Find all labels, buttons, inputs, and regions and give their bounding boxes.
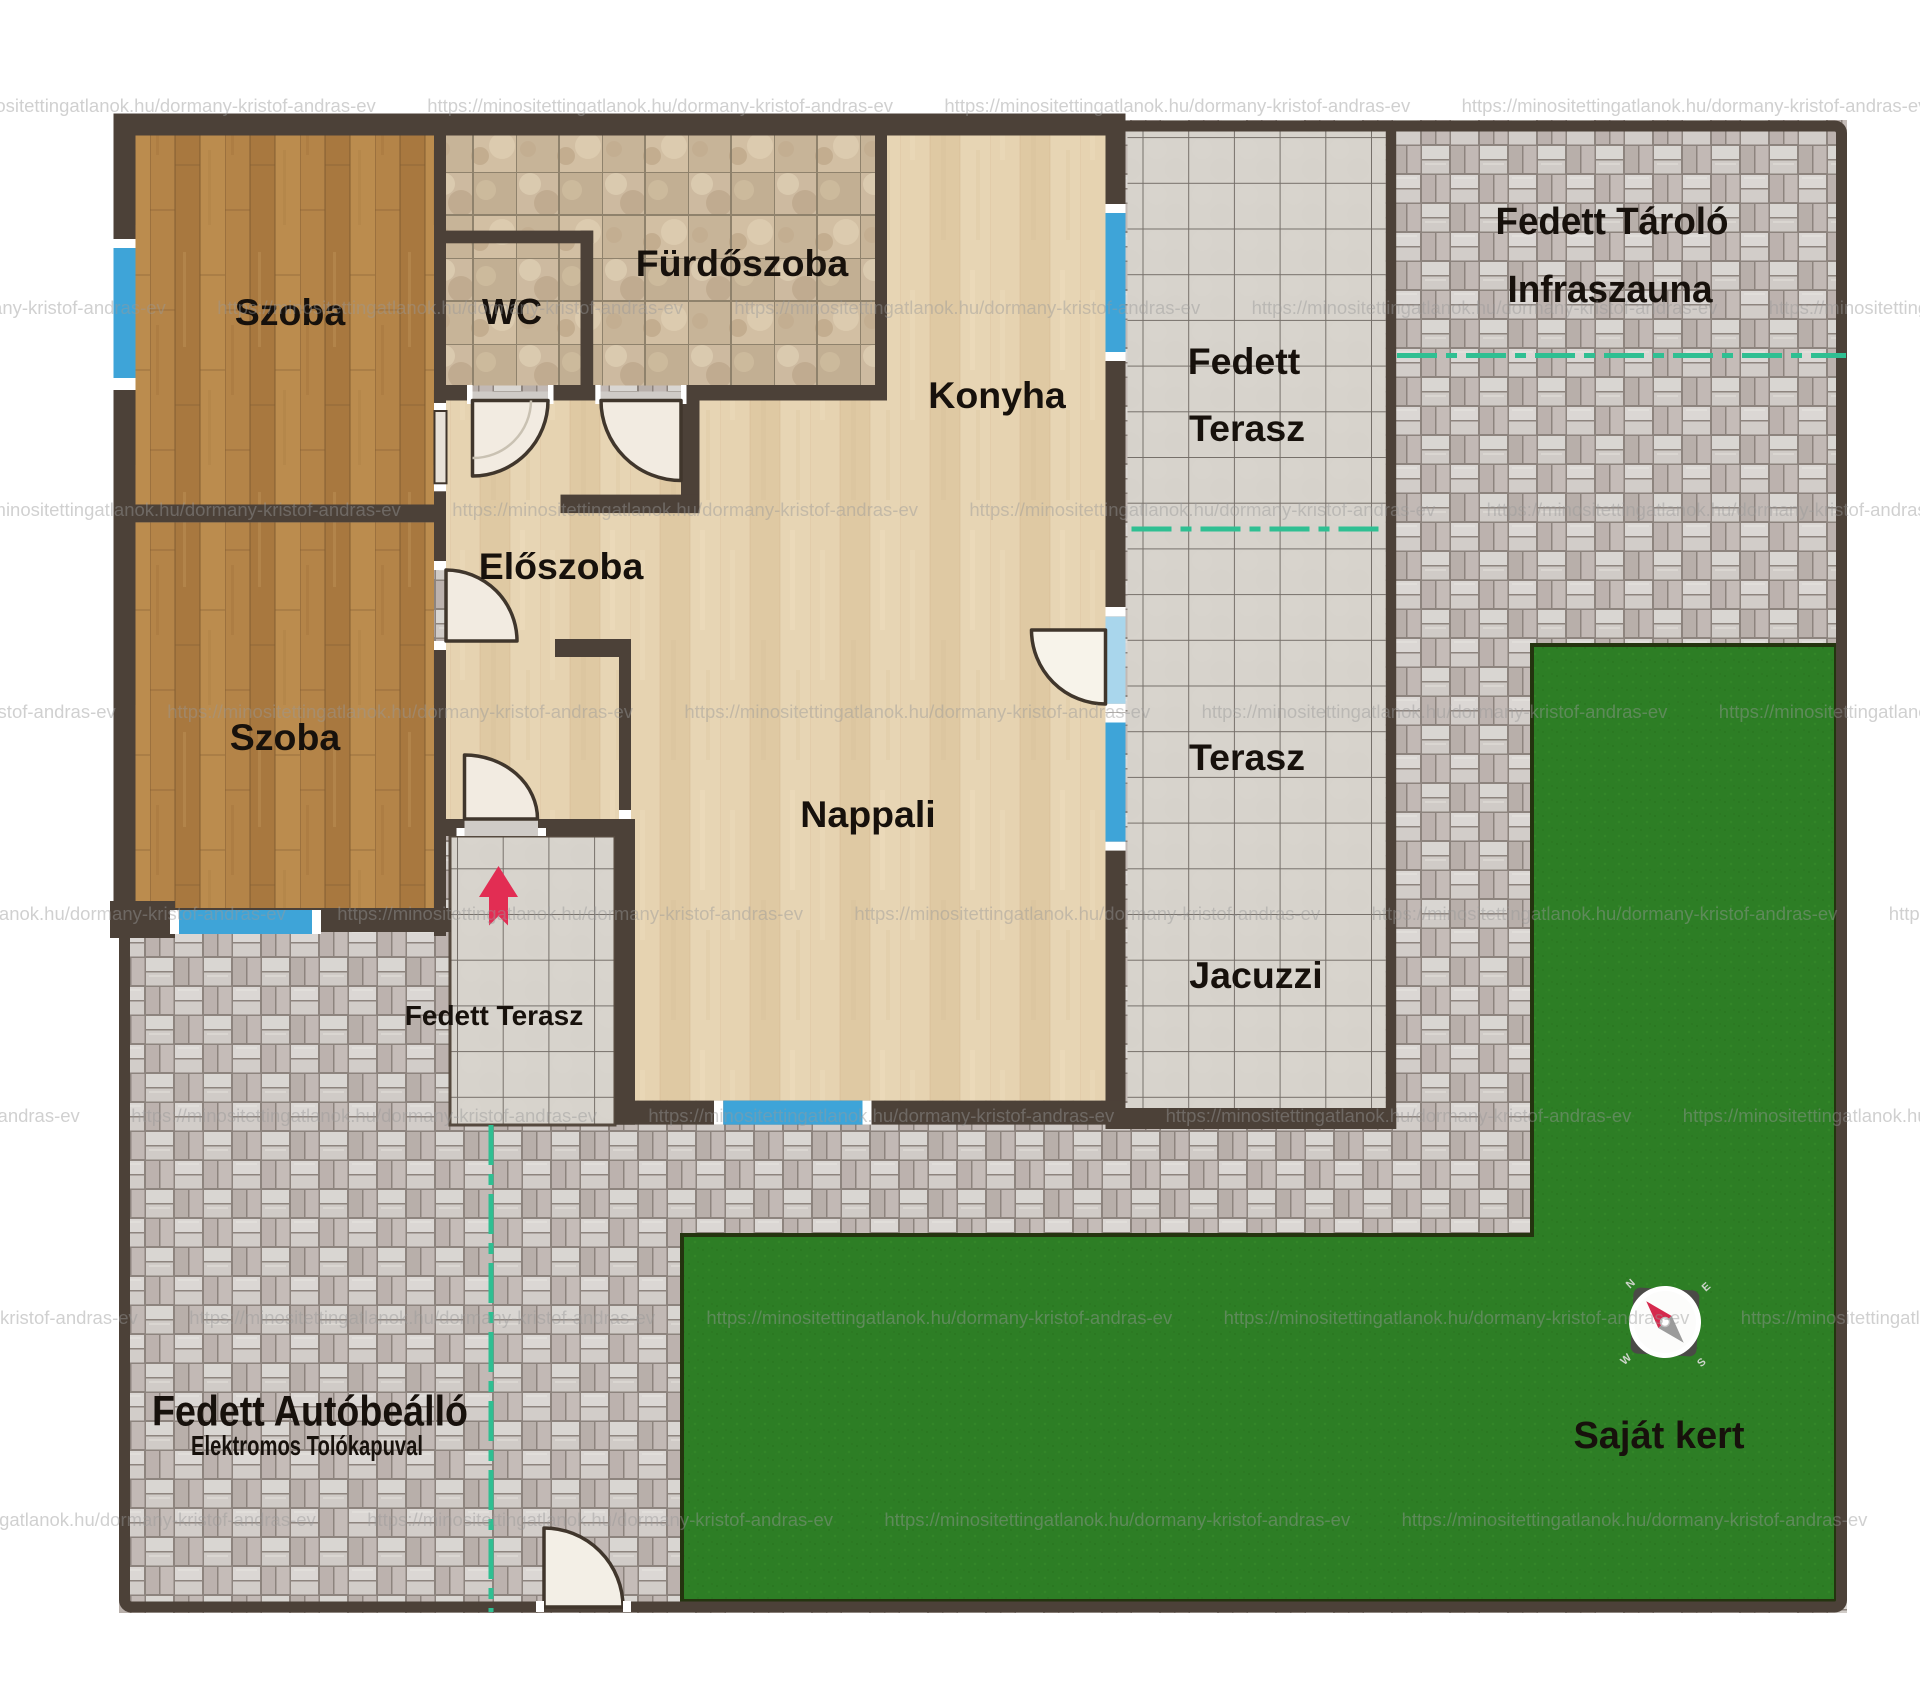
svg-text:Terasz: Terasz [1189, 736, 1305, 778]
svg-text:Fedett: Fedett [1188, 340, 1301, 382]
svg-text:https://minositettingatlanok.h: https://minositettingatlanok.hu/dormany-… [0, 903, 1920, 924]
svg-text:Előszoba: Előszoba [479, 545, 645, 587]
svg-text:Terasz: Terasz [1189, 407, 1305, 449]
svg-text:https://minositettingatlanok.h: https://minositettingatlanok.hu/dormany-… [0, 1509, 1920, 1530]
svg-text:Fedett Tároló: Fedett Tároló [1496, 201, 1729, 243]
svg-text:Fürdőszoba: Fürdőszoba [636, 242, 850, 284]
svg-text:https://minositettingatlanok.h: https://minositettingatlanok.hu/dormany-… [0, 95, 1920, 116]
svg-text:Saját kert: Saját kert [1573, 1415, 1744, 1457]
svg-text:Konyha: Konyha [928, 374, 1067, 416]
svg-text:Szoba: Szoba [230, 716, 342, 758]
svg-text:https://minositettingatlanok.h: https://minositettingatlanok.hu/dormany-… [0, 701, 1920, 722]
svg-text:https://minositettingatlanok.h: https://minositettingatlanok.hu/dormany-… [0, 499, 1920, 520]
svg-text:Fedett Terasz: Fedett Terasz [405, 1000, 583, 1031]
svg-text:Elektromos Tolókapuval: Elektromos Tolókapuval [191, 1430, 423, 1461]
svg-text:https://minositettingatlanok.h: https://minositettingatlanok.hu/dormany-… [0, 297, 1920, 318]
svg-text:https://minositettingatlanok.h: https://minositettingatlanok.hu/dormany-… [0, 1307, 1920, 1328]
svg-text:Fedett Autóbeálló: Fedett Autóbeálló [152, 1388, 468, 1436]
svg-text:Nappali: Nappali [800, 793, 935, 835]
svg-text:https://minositettingatlanok.h: https://minositettingatlanok.hu/dormany-… [0, 1105, 1920, 1126]
svg-text:Jacuzzi: Jacuzzi [1189, 954, 1322, 996]
